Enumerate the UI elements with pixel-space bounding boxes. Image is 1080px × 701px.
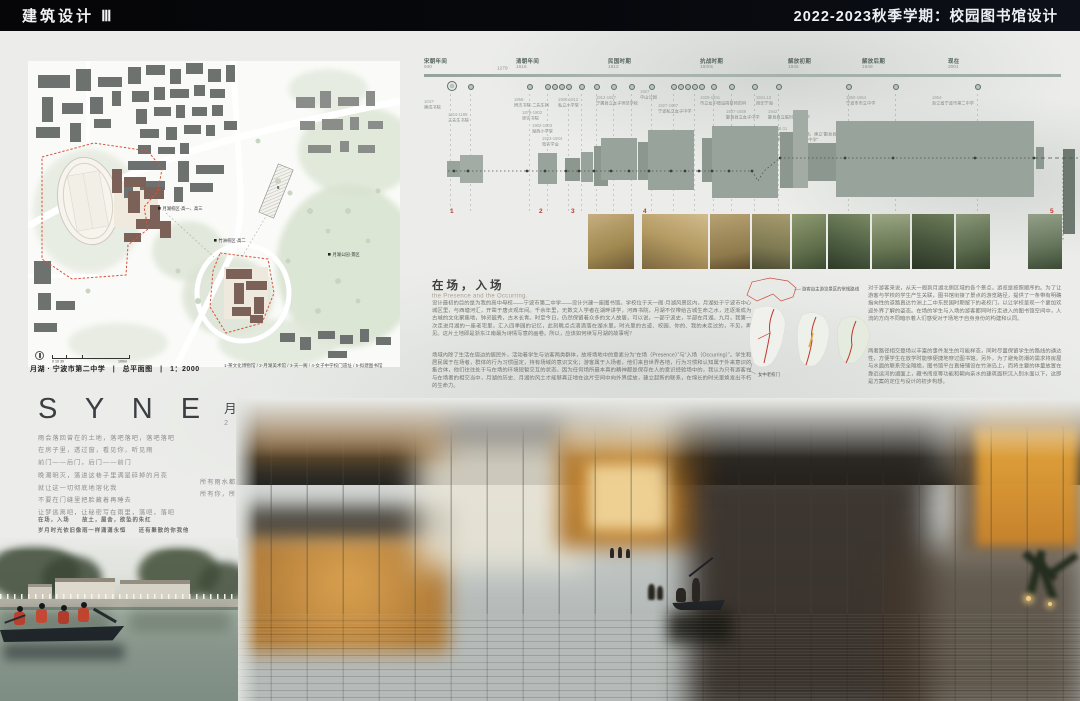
poem-line: 不要在门缝里把脸藏着再睡去 [38, 494, 175, 506]
modern-photo [828, 214, 870, 269]
canoeist [58, 611, 69, 624]
route-diagrams: 游客自主游览景区的常规路线 女中老校门 [744, 275, 876, 381]
rower-figure [676, 588, 686, 602]
map-legend: 1-茶文化博物馆 / 2-月湖美术馆 / 3-天一阁 / 4-女子中学校门遗址 … [224, 362, 398, 369]
route-sketch-outline [747, 278, 796, 301]
canoeist [78, 608, 89, 622]
campus-label-yuehu: 月湖校区·高一、高三 [163, 205, 204, 212]
poem-footer-line: 在场，入场 故土，屋舍，欲坠的朱红 [38, 515, 189, 525]
gate-label: 女中老校门 [758, 371, 780, 378]
historic-photo [588, 214, 634, 269]
rower-figure [692, 578, 700, 602]
essay-subtitle: the Presence and the Occurring. [432, 292, 528, 299]
poem-line: 雨会落回曾在的土地，落吧落吧，落吧落吧 [38, 432, 175, 444]
modern-photo [912, 214, 954, 269]
canoe [0, 626, 128, 642]
essay-paragraph: 设计最初的目的是为我的高中母校——宁波市第二中学——设计兴建一座图书馆。学校位于… [432, 299, 751, 337]
canoeist [36, 609, 47, 623]
sequence-marker: 1 [450, 208, 454, 215]
canoeist-head [17, 606, 23, 612]
figure-on-ledge [610, 548, 614, 558]
historic-photo [710, 214, 750, 269]
figure-on-ledge [626, 549, 630, 558]
poem-line: 就让这一切彻底地溶化我 [38, 482, 175, 494]
canoe-reflection [4, 644, 124, 660]
poem-line: 晚潮明灭，落进这巷子里满是碎掉的月亮 [38, 469, 175, 481]
semester-title: 2022-2023秋季学期：校园图书馆设计 [794, 5, 1058, 26]
scale-bar [52, 354, 130, 359]
north-arrow-icon [35, 351, 44, 360]
poem-line: 在房子里，透过窗，看见你，听见雨 [38, 444, 175, 456]
tree-reflection [130, 610, 230, 632]
figure-on-ledge [618, 547, 622, 558]
sequence-marker: 2 [539, 208, 543, 215]
map-caption: 月湖 · 宁波市第二中学 | 总平面图 | 1：2000 [30, 364, 200, 374]
canoeist-head [61, 605, 67, 611]
embankment-wall [0, 599, 238, 607]
essay-right-paragraph: 两者路径相交登场以丰富的事件发生的可能样态，同时尽量保留学生的路线的通达性，方便… [868, 347, 1061, 385]
light-dot [1026, 596, 1031, 601]
site-plan-map: 5 月湖校区·高一、高三 竹洲校区·高二 月湖公园·景区 [28, 61, 400, 367]
project-name: S Y N E [38, 395, 210, 424]
essay-paragraph: 场域内除了生活在周边的居民外，活动着学生与访客两类群体，故将场地中的意素分为“在… [432, 351, 751, 389]
essay-right-paragraph: 对于游客来说，从天一阁到月湖北侧区域的各个景点，游览是按照顺序的。为了让游客与学… [868, 284, 1061, 322]
poem-footer: 在场，入场 故土，屋舍，欲坠的朱红 岁月时光依旧像雨一样潇潇永恒 还有聚散的你我… [38, 515, 189, 536]
modern-photo [956, 214, 990, 269]
plant-silhouette [1012, 550, 1080, 634]
park-label: 月湖公园·景区 [333, 251, 361, 258]
poem-left-column: 雨会落回曾在的土地，落吧落吧，落吧落吧 在房子里，透过窗，看见你，听见雨 前门—… [38, 432, 175, 519]
sequence-marker: 3 [571, 208, 575, 215]
light-dot [1048, 602, 1052, 606]
presentation-board: 建筑设计 Ⅲ 2022-2023秋季学期：校园图书馆设计 [0, 0, 1080, 701]
water-ripples [236, 614, 1080, 701]
map-svg: 5 月湖校区·高一、高三 竹洲校区·高二 月湖公园·景区 [28, 61, 400, 367]
modern-photo [992, 214, 1026, 269]
course-title: 建筑设计 Ⅲ [22, 5, 115, 26]
essay-title: 在场，入场 [432, 277, 505, 293]
figure-behind-glass [657, 586, 663, 600]
modern-photo [792, 214, 826, 269]
shore-photo [0, 538, 238, 701]
facade-top-fade [236, 398, 1080, 458]
header-bar: 建筑设计 Ⅲ 2022-2023秋季学期：校园图书馆设计 [0, 0, 1080, 31]
canoe-group [0, 616, 140, 666]
modern-photo [1028, 214, 1062, 269]
poem-line: 前门——后门，后门——前门 [38, 457, 175, 469]
shore-top-fade [0, 538, 238, 552]
poem-footer-line: 岁月时光依旧像雨一样潇潇永恒 还有聚散的你我他 [38, 525, 189, 535]
modern-photo [872, 214, 910, 269]
facade-left-fade [236, 398, 258, 701]
historic-photo [752, 214, 790, 269]
library-rendering [236, 398, 1080, 701]
route-label: 游客自主游览景区的常规路线 [802, 286, 860, 293]
historic-photo [642, 214, 708, 269]
figure-behind-glass [648, 584, 655, 600]
campus-label-zhuzhou: 竹洲校区·高二 [219, 237, 247, 244]
canoeist-head [39, 603, 45, 609]
canoeist-head [81, 602, 87, 608]
